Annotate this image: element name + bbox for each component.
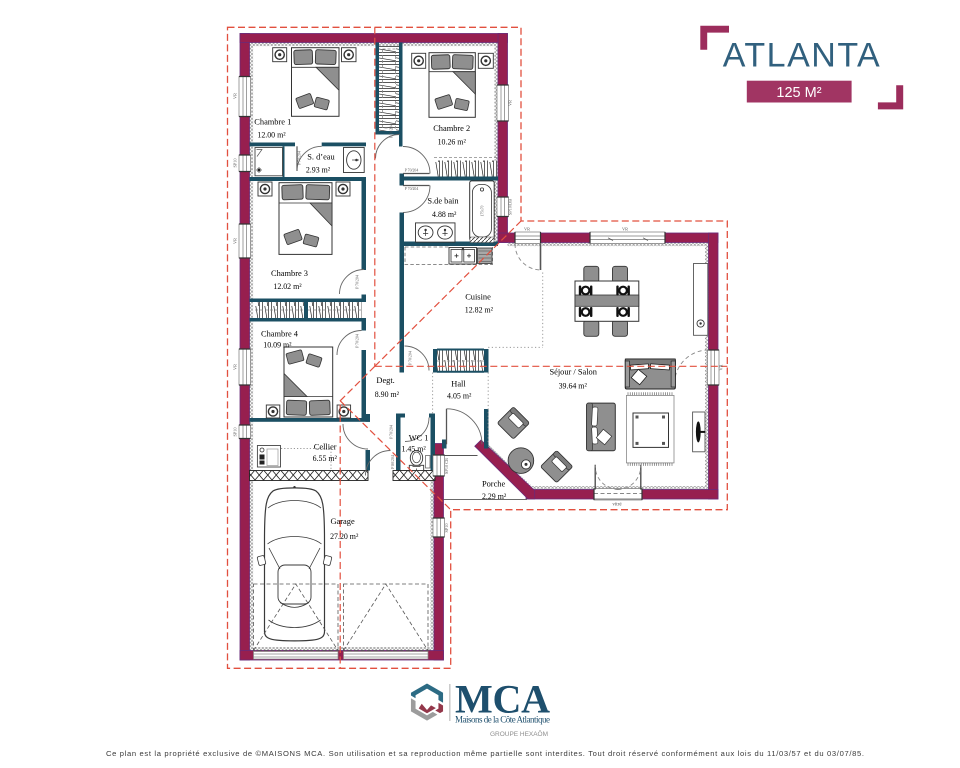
svg-text:SP10: SP10	[233, 158, 238, 167]
svg-text:VR: VR	[524, 227, 530, 232]
svg-text:12.02 m²: 12.02 m²	[273, 282, 302, 291]
svg-text:Garage: Garage	[331, 517, 355, 526]
svg-text:VR: VR	[233, 364, 238, 370]
svg-text:SP10: SP10	[233, 427, 238, 436]
svg-text:27.20 m²: 27.20 m²	[330, 532, 359, 541]
svg-text:39.64 m²: 39.64 m²	[559, 382, 588, 391]
svg-text:P 70/204: P 70/204	[409, 351, 413, 365]
svg-text:P 70/204: P 70/204	[356, 275, 360, 289]
svg-text:VR: VR	[233, 93, 238, 99]
svg-text:4.88 m²: 4.88 m²	[432, 210, 457, 219]
svg-text:1.45 m²: 1.45 m²	[401, 445, 426, 454]
svg-text:SP10/DB: SP10/DB	[508, 199, 513, 215]
svg-text:P 70/204: P 70/204	[298, 151, 302, 165]
svg-text:S.de bain: S.de bain	[427, 197, 459, 206]
svg-text:Chambre 3: Chambre 3	[271, 269, 308, 278]
svg-text:P 70/204: P 70/204	[405, 168, 419, 172]
svg-text:Cellier: Cellier	[314, 443, 337, 452]
svg-text:Séjour / Salon: Séjour / Salon	[549, 368, 597, 377]
svg-text:4.05 m²: 4.05 m²	[447, 392, 472, 401]
svg-text:Chambre 1: Chambre 1	[254, 118, 291, 127]
svg-text:SP10 CB: SP10 CB	[444, 458, 449, 474]
svg-text:125 M²: 125 M²	[776, 85, 821, 101]
svg-text:Cuisine: Cuisine	[465, 293, 491, 302]
svg-text:WC 1: WC 1	[409, 434, 429, 443]
svg-text:P 70/204: P 70/204	[390, 124, 394, 138]
svg-text:P 70/204: P 70/204	[390, 425, 394, 439]
svg-text:10.26 m²: 10.26 m²	[438, 138, 467, 147]
svg-text:S. d’eau: S. d’eau	[307, 153, 335, 162]
svg-text:VR: VR	[508, 100, 513, 106]
svg-text:VR: VR	[233, 238, 238, 244]
svg-text:P 70/204: P 70/204	[405, 187, 419, 191]
svg-text:Hall: Hall	[451, 380, 466, 389]
svg-text:12.82 m²: 12.82 m²	[465, 306, 494, 315]
svg-text:P 80/204: P 80/204	[391, 455, 395, 469]
svg-text:6.55 m²: 6.55 m²	[313, 454, 338, 463]
svg-text:Chambre 4: Chambre 4	[261, 330, 299, 339]
svg-text:Maisons de la Côte Atlantique: Maisons de la Côte Atlantique	[455, 715, 550, 725]
svg-text:8.90 m²: 8.90 m²	[375, 390, 400, 399]
svg-text:SP10: SP10	[444, 523, 449, 532]
svg-text:2.93 m²: 2.93 m²	[306, 166, 331, 175]
svg-text:2.29 m²: 2.29 m²	[482, 492, 507, 501]
svg-text:Ce plan est la propriété exclu: Ce plan est la propriété exclusive de ©M…	[106, 749, 864, 758]
svg-text:Degt.: Degt.	[376, 376, 394, 385]
svg-text:VR: VR	[719, 364, 724, 370]
svg-text:ATLANTA: ATLANTA	[723, 37, 882, 75]
svg-text:Chambre 2: Chambre 2	[433, 124, 470, 133]
svg-text:175x70: 175x70	[481, 205, 485, 216]
svg-text:12.00 m²: 12.00 m²	[257, 131, 286, 140]
svg-text:10.09 m²: 10.09 m²	[263, 341, 292, 350]
svg-text:vitré: vitré	[612, 503, 622, 508]
svg-text:GROUPE HEXAŌM: GROUPE HEXAŌM	[490, 730, 549, 738]
svg-text:VR: VR	[622, 227, 628, 232]
svg-text:P 70/204: P 70/204	[356, 334, 360, 348]
svg-text:Porche: Porche	[482, 480, 506, 489]
